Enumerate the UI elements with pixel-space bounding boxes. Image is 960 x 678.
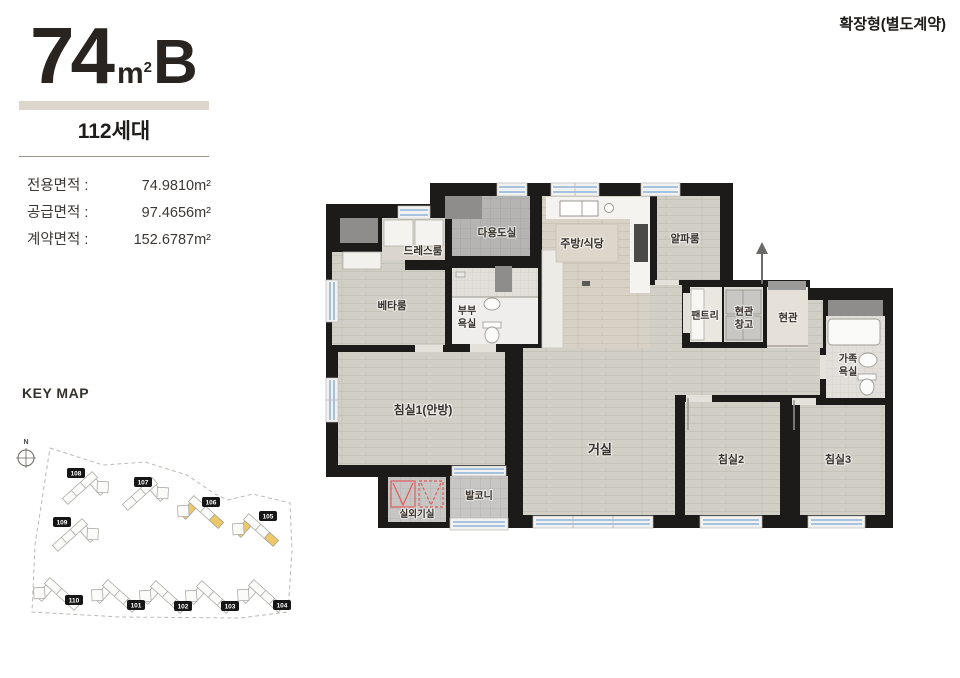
window-balcony-inner: [452, 466, 506, 476]
divider-line: [19, 156, 209, 157]
duct-corner: [340, 218, 378, 243]
floor-outlet: [582, 281, 590, 286]
dress-wardrobe: [415, 220, 443, 246]
label-storage-2: 창고: [735, 318, 753, 331]
badge-107: 107: [134, 477, 152, 487]
svg-text:108: 108: [71, 471, 82, 478]
area-label: 계약면적 :: [27, 231, 88, 249]
door-gap-bath-family: [820, 355, 826, 379]
svg-text:110: 110: [69, 598, 80, 605]
label-alpha: 알파룸: [671, 232, 700, 245]
svg-text:106: 106: [206, 500, 217, 507]
badge-105: 105: [259, 511, 277, 521]
door-gap-bedroom2: [686, 395, 712, 402]
refrigerator: [634, 224, 648, 262]
entrance-arrow-icon: [756, 242, 768, 284]
corridor-entry-strip: [808, 300, 823, 348]
window-bottom-living: [533, 516, 653, 528]
toilet: [860, 379, 874, 395]
door-gap-pantry: [683, 293, 690, 333]
area-label: 공급면적 :: [27, 204, 88, 222]
window-bottom-bedroom2: [700, 516, 762, 528]
compass-north-label: N: [23, 439, 28, 446]
window-top-kitchen: [551, 183, 599, 196]
label-entrance: 현관: [778, 311, 798, 324]
svg-text:107: 107: [138, 480, 149, 487]
dress-wardrobe: [384, 220, 413, 246]
area-row-supply: 공급면적 : 97.4656m²: [27, 204, 211, 222]
window-top-utility: [497, 183, 527, 196]
badge-102: 102: [174, 601, 192, 611]
keymap-drawing: N: [10, 428, 310, 633]
badge-104: 104: [273, 600, 291, 610]
type-number: 74: [30, 16, 111, 96]
toilet: [485, 327, 499, 343]
window-bottom-bedroom3: [808, 516, 865, 528]
household-count: 112세대: [19, 115, 209, 145]
bathtub: [828, 319, 880, 345]
area-value: 152.6787m²: [134, 231, 211, 249]
duct-bath-family: [828, 300, 883, 316]
label-bedroom2: 침실2: [718, 452, 744, 466]
type-unit-sup: 2: [144, 59, 152, 76]
duct-utility: [445, 196, 482, 219]
entrance-door: [768, 281, 806, 290]
svg-text:104: 104: [277, 603, 288, 610]
window-left-beta: [326, 280, 338, 322]
label-pantry: 팬트리: [691, 309, 719, 322]
type-letter: B: [153, 32, 197, 94]
area-row-contract: 계약면적 : 152.6787m²: [27, 231, 211, 249]
label-dress: 드레스룸: [404, 244, 443, 257]
window-top-dress: [398, 206, 430, 219]
type-unit-base: m: [117, 57, 144, 90]
svg-text:102: 102: [178, 604, 189, 611]
label-storage-1: 현관: [735, 305, 754, 318]
badge-109: 109: [53, 517, 71, 527]
floorplan-page: 74 m2 B 112세대 전용면적 : 74.9810m² 공급면적 : 97…: [0, 0, 960, 678]
kitchen-sink-unit: [560, 201, 598, 216]
corridor-floor: [650, 285, 682, 348]
window-balcony-outer: [450, 518, 508, 530]
label-beta: 베타룸: [378, 299, 407, 312]
svg-text:109: 109: [57, 520, 68, 527]
sink: [484, 298, 500, 310]
kitchen-closet-strip: [542, 250, 563, 348]
label-bath-family-1: 가족: [839, 352, 857, 365]
label-bath-couple-1: 부부: [458, 305, 476, 317]
svg-text:101: 101: [131, 603, 142, 610]
shower-head: [456, 272, 465, 277]
area-row-exclusive: 전용면적 : 74.9810m²: [27, 177, 211, 195]
area-table: 전용면적 : 74.9810m² 공급면적 : 97.4656m² 계약면적 :…: [27, 168, 211, 249]
door-gap-bath-couple: [470, 344, 496, 352]
label-utility: 다용도실: [478, 226, 517, 239]
label-kitchen: 주방/식당: [560, 236, 604, 250]
stove-burner: [605, 204, 614, 213]
badge-108: 108: [67, 468, 85, 478]
unit-type-title: 74 m2 B: [30, 16, 197, 96]
area-label: 전용면적 :: [27, 177, 88, 195]
area-value: 74.9810m²: [142, 177, 211, 195]
window-left-bedroom1: [326, 378, 338, 422]
living-corridor-floor: [523, 348, 820, 395]
wall-below-dressroom: [405, 260, 445, 270]
badge-101: 101: [127, 600, 145, 610]
label-living: 거실: [588, 442, 612, 457]
floorplan-drawing: 드레스룸 다용도실 주방/식당 알파룸 베타룸 부부 욕실 팬트리 현관 창고 …: [320, 168, 910, 538]
window-top-alpha: [641, 183, 680, 196]
label-bath-couple-2: 욕실: [458, 317, 476, 330]
svg-text:105: 105: [263, 514, 274, 521]
label-balcony: 발코니: [465, 489, 493, 502]
expansion-note: 확장형(별도계약): [839, 13, 946, 34]
label-bedroom3: 침실3: [825, 452, 851, 466]
label-bath-family-2: 욕실: [839, 365, 857, 378]
sink: [859, 353, 877, 367]
duct-bath: [495, 266, 512, 292]
area-value: 97.4656m²: [142, 204, 211, 222]
badge-103: 103: [221, 601, 239, 611]
type-unit: m2: [117, 57, 152, 91]
keymap-title: KEY MAP: [22, 385, 89, 401]
door-gap-bedroom3: [792, 398, 816, 405]
title-underline-bar: [19, 101, 209, 110]
badge-106: 106: [202, 497, 220, 507]
compass-icon: N: [16, 439, 36, 468]
svg-text:103: 103: [225, 604, 236, 611]
label-bedroom1: 침실1(안방): [394, 402, 453, 417]
beta-closet: [343, 252, 381, 269]
door-gap-beta: [415, 345, 443, 352]
label-acroom: 실외기실: [400, 508, 435, 520]
badge-110: 110: [65, 595, 83, 605]
